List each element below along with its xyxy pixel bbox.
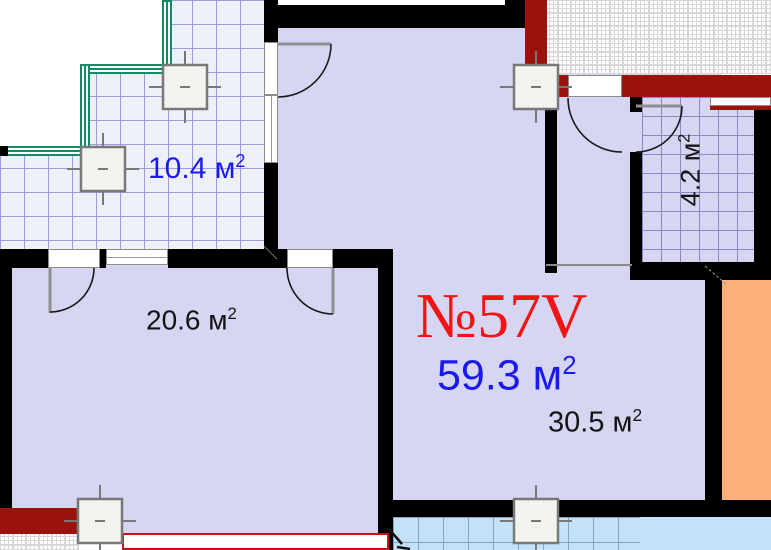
corner-hatch-area <box>0 532 79 550</box>
main-room-area-label: 30.5 м2 <box>548 407 642 438</box>
balcony-window <box>264 95 278 163</box>
red-wall-segment <box>557 75 568 97</box>
wall-segment <box>278 5 528 28</box>
wall-segment <box>630 262 771 280</box>
red-wall-segment <box>0 508 79 534</box>
wall-segment <box>545 100 557 273</box>
balcony-glazing-segment <box>80 64 90 156</box>
living-room-door2-opening <box>287 249 333 268</box>
wall-segment <box>264 0 278 42</box>
apartment-number-label: №57V <box>416 284 587 348</box>
bathroom-exterior-window <box>710 97 771 106</box>
bathroom-area-label: 4.2 м2 <box>676 134 704 207</box>
wall-segment <box>754 108 771 270</box>
lower-balcony-grid <box>393 515 640 550</box>
wall-segment <box>168 249 287 268</box>
total-area-label: 59.3 м2 <box>437 354 577 397</box>
wall-segment <box>378 263 393 550</box>
balcony-door-opening <box>264 42 278 95</box>
balcony-glazing-segment <box>80 64 172 74</box>
neighbor-unit-floor <box>722 280 771 500</box>
stairwell-hatch-area <box>545 0 771 74</box>
floor-plan: 10.4 м2 20.6 м2 №57V 59.3 м2 30.5 м2 4.2… <box>0 0 771 550</box>
bathroom-area-label-box: 4.2 м2 <box>632 108 748 232</box>
balcony-floor-tiles <box>0 0 266 250</box>
living-room-window <box>106 249 168 265</box>
living-room-door-opening <box>48 249 100 268</box>
red-wall-segment <box>622 75 771 97</box>
balcony-area-label: 10.4 м2 <box>148 152 245 184</box>
balcony-glazing-segment <box>0 146 90 156</box>
entrance-door-leaf <box>568 75 622 97</box>
wall-segment <box>0 258 12 512</box>
living-room-exterior-window <box>122 533 389 550</box>
red-wall-segment <box>525 0 547 66</box>
wall-segment <box>0 146 8 156</box>
balcony-glazing-segment <box>162 0 172 70</box>
wall-segment <box>390 500 771 517</box>
wall-segment <box>705 266 722 500</box>
living-room-floor <box>10 260 393 538</box>
living-room-area-label: 20.6 м2 <box>146 306 237 334</box>
wall-segment <box>264 163 278 260</box>
